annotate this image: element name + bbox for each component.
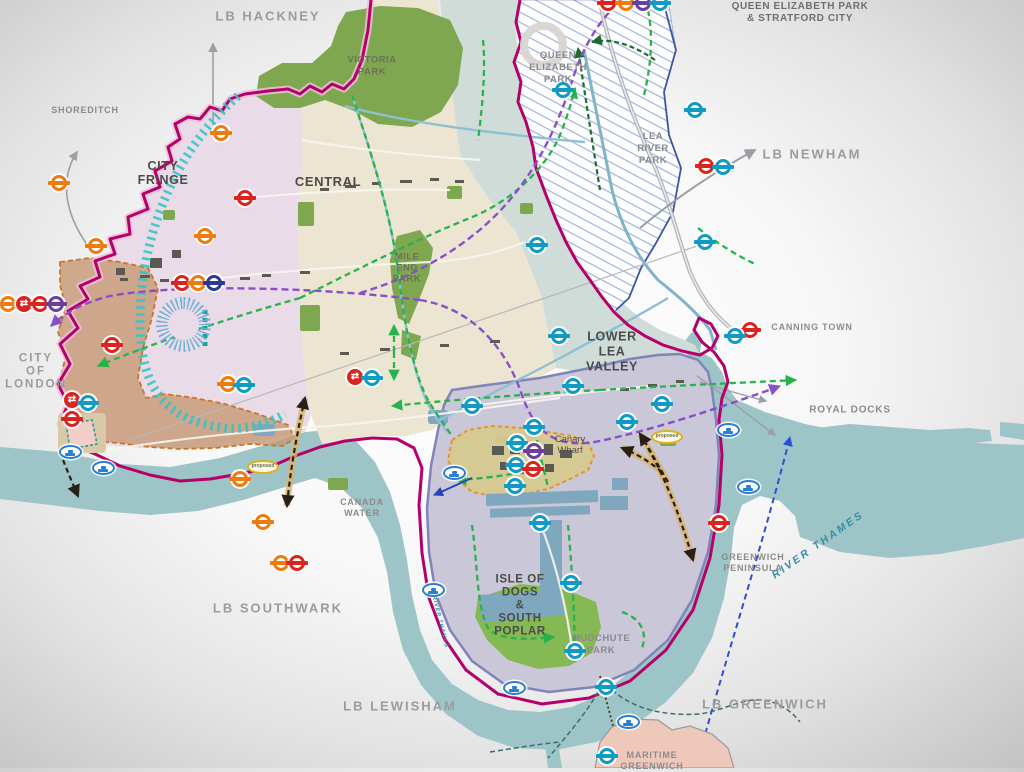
tube-roundel-icon[interactable] [551, 328, 567, 344]
tube-roundel-icon[interactable] [51, 175, 67, 191]
orbit-ring-icon [520, 22, 567, 69]
whitechapel-sunburst-icon [156, 297, 211, 352]
map-canvas: ⇄⇄⇄ proposedproposed LB HACKNEY SHOREDIT… [0, 0, 1024, 768]
tube-roundel-icon[interactable] [715, 159, 731, 175]
tube-roundel-icon[interactable] [197, 228, 213, 244]
riverbus-pier-icon[interactable] [503, 681, 526, 695]
tube-roundel-icon[interactable] [464, 398, 480, 414]
tube-roundel-icon[interactable] [654, 396, 670, 412]
tube-roundel-icon[interactable] [532, 515, 548, 531]
tube-roundel-icon[interactable] [80, 395, 96, 411]
tube-roundel-icon[interactable] [526, 419, 542, 435]
tube-roundel-icon[interactable] [687, 102, 703, 118]
riverbus-pier-icon[interactable] [422, 583, 445, 597]
tube-roundel-icon[interactable] [697, 234, 713, 250]
tube-roundel-icon[interactable] [727, 328, 743, 344]
tube-roundel-icon[interactable] [526, 443, 542, 459]
riverbus-pier-icon[interactable] [443, 466, 466, 480]
riverbus-pier-icon[interactable] [617, 715, 640, 729]
tube-roundel-icon[interactable] [104, 337, 120, 353]
tube-roundel-icon[interactable] [64, 411, 80, 427]
tube-roundel-icon[interactable] [206, 275, 222, 291]
maritime-greenwich-shape [595, 719, 734, 768]
tube-roundel-icon[interactable] [0, 296, 16, 312]
tube-roundel-icon[interactable] [565, 378, 581, 394]
proposed-pier-icon: proposed [651, 430, 683, 444]
tube-roundel-icon[interactable] [236, 377, 252, 393]
tube-roundel-icon[interactable] [598, 679, 614, 695]
tube-roundel-icon[interactable] [619, 414, 635, 430]
tube-roundel-icon[interactable] [529, 237, 545, 253]
tube-roundel-icon[interactable] [563, 575, 579, 591]
tube-roundel-icon[interactable] [599, 748, 615, 764]
tube-roundel-icon[interactable] [255, 514, 271, 530]
map-artwork [0, 0, 1024, 768]
tube-roundel-icon[interactable] [507, 478, 523, 494]
proposed-pier-icon: proposed [247, 460, 279, 474]
tube-roundel-icon[interactable] [711, 515, 727, 531]
riverbus-pier-icon[interactable] [92, 461, 115, 475]
tube-roundel-icon[interactable] [237, 190, 253, 206]
tube-roundel-icon[interactable] [232, 471, 248, 487]
riverbus-pier-icon[interactable] [737, 480, 760, 494]
tube-roundel-icon[interactable] [555, 82, 571, 98]
tube-roundel-icon[interactable] [364, 370, 380, 386]
tube-roundel-icon[interactable] [525, 461, 541, 477]
riverbus-pier-icon[interactable] [717, 423, 740, 437]
tube-roundel-icon[interactable] [289, 555, 305, 571]
tube-roundel-icon[interactable] [567, 643, 583, 659]
tube-roundel-icon[interactable] [48, 296, 64, 312]
tube-roundel-icon[interactable] [88, 238, 104, 254]
tube-roundel-icon[interactable] [213, 125, 229, 141]
riverbus-pier-icon[interactable] [59, 445, 82, 459]
